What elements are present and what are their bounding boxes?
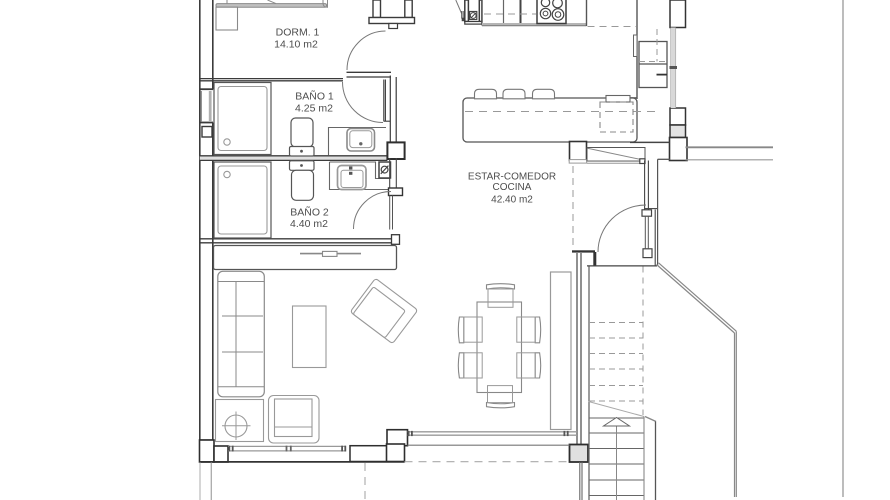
svg-text:BAÑO 1: BAÑO 1 (295, 90, 334, 103)
svg-text:ESTAR-COMEDOR: ESTAR-COMEDOR (468, 172, 556, 183)
svg-text:14.10 m2: 14.10 m2 (274, 39, 318, 51)
svg-text:COCINA: COCINA (493, 182, 532, 193)
svg-text:4.25 m2: 4.25 m2 (295, 103, 333, 115)
svg-text:BAÑO 2: BAÑO 2 (290, 206, 329, 219)
svg-text:42.40 m2: 42.40 m2 (491, 195, 533, 206)
svg-text:DORM. 1: DORM. 1 (276, 27, 320, 39)
svg-text:4.40 m2: 4.40 m2 (290, 218, 328, 230)
